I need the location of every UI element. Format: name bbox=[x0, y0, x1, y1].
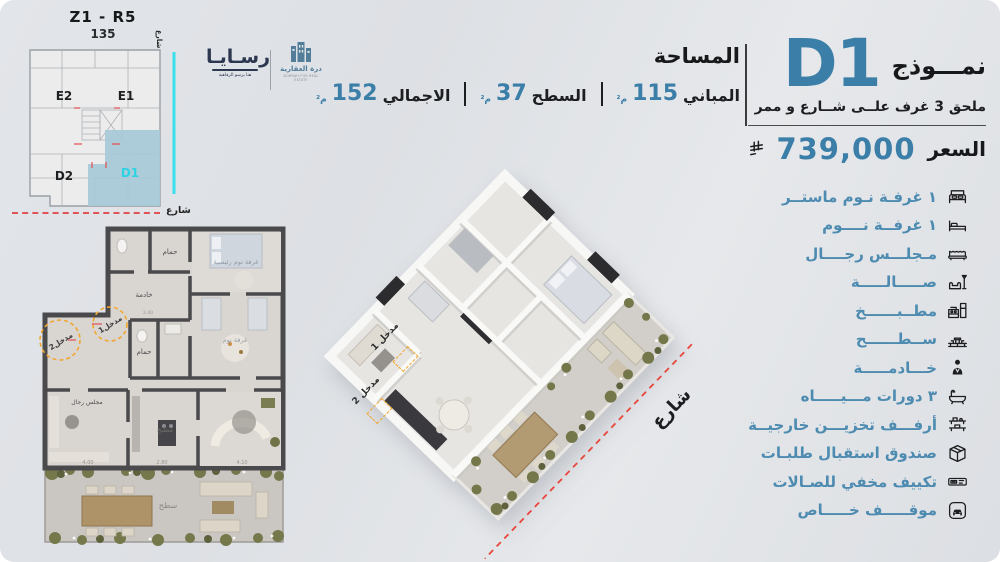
area-title: المساحة bbox=[300, 44, 740, 68]
stat-value: 37 bbox=[496, 83, 527, 105]
site-plan-zone-title: Z1 - R5 bbox=[28, 8, 178, 26]
unit-e1-label: E1 bbox=[118, 89, 135, 103]
feature-kitchen: مطــبــــــخ bbox=[748, 300, 968, 321]
stat-label: الاجمالي bbox=[383, 86, 451, 105]
roof-terrace-icon bbox=[946, 328, 968, 350]
saudi-riyal-icon bbox=[749, 140, 764, 161]
parking-icon bbox=[946, 499, 968, 521]
stat-unit: م² bbox=[480, 95, 491, 105]
maid-icon bbox=[946, 357, 968, 379]
street-label-vertical: شارع bbox=[155, 30, 163, 48]
feature-roof: ســطــــــح bbox=[748, 329, 968, 350]
rasaya-logo: رسـايـا هنا يرسو الرفاهية bbox=[206, 48, 264, 78]
feature-storage: أرفـــف تخزيـــن خارجيــة bbox=[748, 414, 968, 435]
feature-label: صـــــالـــــة bbox=[851, 273, 937, 291]
parcel-box-icon bbox=[946, 442, 968, 464]
site-plan-map: E2 E1 D2 D1 bbox=[2, 44, 202, 214]
feature-hidden-ac: تكييف مخفي للصـالات bbox=[748, 471, 968, 492]
svg-text:خادمة: خادمة bbox=[135, 291, 152, 299]
majlis-sofa-icon bbox=[946, 243, 968, 265]
rasaya-logo-swash bbox=[212, 69, 258, 71]
model-code: D1 bbox=[783, 34, 880, 95]
area-section: المساحة المباني 115 م² السطح 37 م² الاجم… bbox=[300, 44, 740, 106]
feature-label: مـجلـــس رجــــال bbox=[805, 245, 937, 263]
svg-text:مجلس رجال: مجلس رجال bbox=[71, 399, 102, 406]
header-divider bbox=[745, 44, 747, 126]
stat-divider bbox=[464, 82, 466, 106]
model-section: نمـــوذج D1 ملحق 3 غرف علــى شــارع و مم… bbox=[748, 34, 986, 166]
feature-label: موقـــــف خـــــاص bbox=[798, 501, 938, 519]
model-word: نمـــوذج bbox=[892, 52, 986, 80]
floor-plan-3d bbox=[322, 158, 702, 562]
feature-parcel-box: صندوق استقبال طلبـات bbox=[748, 443, 968, 464]
feature-master-bedroom: ١ غرفـة نـوم ماستــر bbox=[748, 186, 968, 207]
stat-unit: م² bbox=[316, 95, 327, 105]
svg-text:غرفة نوم رئيسية: غرفة نوم رئيسية bbox=[213, 258, 259, 266]
feature-label: تكييف مخفي للصـالات bbox=[772, 473, 937, 491]
price-label: السعر bbox=[928, 137, 986, 161]
unit-e2-label: E2 bbox=[56, 89, 73, 103]
terrace-label: سطح bbox=[159, 501, 178, 510]
feature-label: أرفـــف تخزيـــن خارجيــة bbox=[748, 416, 937, 434]
price-separator bbox=[748, 125, 986, 126]
stat-value: 115 bbox=[632, 83, 678, 105]
svg-text:2.80: 2.80 bbox=[156, 460, 167, 466]
price-value: 739,000 bbox=[776, 132, 915, 166]
floor-plan-2d: سطح bbox=[30, 224, 316, 558]
rasaya-logo-tagline: هنا يرسو الرفاهية bbox=[206, 73, 264, 78]
feature-label: ١ غرفــة نــــوم bbox=[822, 216, 937, 234]
features-list: ١ غرفـة نـوم ماستــر ١ غرفــة نــــوم مـ… bbox=[748, 186, 968, 521]
feature-label: صندوق استقبال طلبـات bbox=[761, 444, 937, 462]
street-label-bottom: شارع bbox=[166, 205, 191, 216]
stat-label: السطح bbox=[532, 86, 587, 105]
ac-unit-icon bbox=[946, 471, 968, 493]
svg-text:4.10: 4.10 bbox=[236, 460, 247, 466]
svg-text:4.00: 4.00 bbox=[82, 460, 93, 466]
stat-buildings: المباني 115 م² bbox=[617, 83, 740, 105]
feature-bathrooms: ٣ دورات مـــيـــــاه bbox=[748, 386, 968, 407]
stat-unit: م² bbox=[617, 95, 628, 105]
feature-majlis: مـجلـــس رجــــال bbox=[748, 243, 968, 264]
sofa-lamp-icon bbox=[946, 271, 968, 293]
area-stats: المباني 115 م² السطح 37 م² الاجمالي 152 … bbox=[300, 82, 740, 106]
flyer-canvas: Z1 - R5 135 E2 E1 D2 D1 شارع شارع رسـايـ… bbox=[0, 0, 1000, 562]
feature-bedroom: ١ غرفــة نــــوم bbox=[748, 215, 968, 236]
feature-label: ســطــــــح bbox=[856, 330, 937, 348]
stat-total: الاجمالي 152 م² bbox=[316, 83, 450, 105]
svg-text:حمام: حمام bbox=[163, 248, 178, 256]
rasaya-logo-name: رسـايـا bbox=[206, 48, 264, 67]
logo-divider bbox=[270, 50, 271, 90]
model-subtitle: ملحق 3 غرف علــى شــارع و ممر bbox=[748, 99, 986, 115]
feature-hall: صـــــالـــــة bbox=[748, 272, 968, 293]
model-title: نمـــوذج D1 bbox=[748, 34, 986, 95]
svg-text:2.40: 2.40 bbox=[143, 310, 153, 316]
storage-shelf-icon bbox=[946, 414, 968, 436]
svg-text:غرفة نوم: غرفة نوم bbox=[223, 336, 248, 344]
stat-roof: السطح 37 م² bbox=[480, 83, 586, 105]
feature-parking: موقـــــف خـــــاص bbox=[748, 500, 968, 521]
stat-divider bbox=[601, 82, 603, 106]
svg-text:حمام: حمام bbox=[137, 348, 152, 356]
kitchen-icon bbox=[946, 300, 968, 322]
price-row: السعر 739,000 bbox=[748, 132, 986, 166]
unit-d2-label: D2 bbox=[55, 169, 73, 183]
feature-label: ١ غرفـة نـوم ماستــر bbox=[782, 188, 937, 206]
feature-maid: خـــادمـــــة bbox=[748, 357, 968, 378]
bed-icon bbox=[946, 214, 968, 236]
bathtub-icon bbox=[946, 385, 968, 407]
feature-label: ٣ دورات مـــيـــــاه bbox=[801, 387, 937, 405]
master-bed-icon bbox=[946, 186, 968, 208]
stat-value: 152 bbox=[332, 83, 378, 105]
feature-label: مطــبــــــخ bbox=[855, 302, 937, 320]
stat-label: المباني bbox=[683, 86, 740, 105]
unit-d1-label: D1 bbox=[121, 166, 139, 180]
feature-label: خـــادمـــــة bbox=[853, 359, 937, 377]
svg-text:مطبخ: مطبخ bbox=[157, 426, 173, 434]
street-dashed-line bbox=[12, 212, 160, 214]
